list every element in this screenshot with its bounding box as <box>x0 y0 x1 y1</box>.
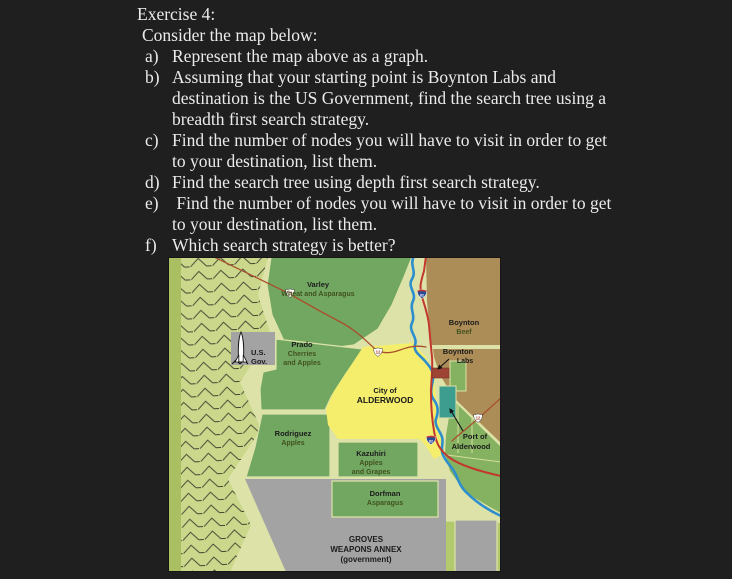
region-crop-text: and Apples <box>283 360 321 367</box>
item-letter: e) <box>145 193 172 214</box>
shield-number: 82 <box>420 293 424 297</box>
region-crop-text: Beef <box>456 329 472 336</box>
shield-number: 12 <box>376 350 381 355</box>
port-of-alderwood-site <box>439 386 456 418</box>
region-name-text: Dorfman <box>370 489 401 498</box>
item-line: Find the number of nodes you will have t… <box>172 193 611 214</box>
region-name-text: Gov. <box>251 357 267 366</box>
item-f: f) Which search strategy is better? <box>145 235 697 256</box>
item-b-cont: breadth first search strategy. <box>145 109 697 130</box>
west-edge-strip <box>168 257 181 572</box>
region-name-text: ALDERWOOD <box>357 395 414 405</box>
region-name-text: (government) <box>340 555 391 564</box>
item-b: b) Assuming that your starting point is … <box>145 67 697 88</box>
item-c-cont: to your destination, list them. <box>145 151 697 172</box>
item-d: d) Find the search tree using depth firs… <box>145 172 697 193</box>
region-name-text: City of <box>373 386 397 395</box>
item-line: to your destination, list them. <box>172 151 377 172</box>
item-e-cont: to your destination, list them. <box>145 214 697 235</box>
exercise-intro: Consider the map below: <box>137 25 697 46</box>
region-sub-text: Labs <box>457 358 473 365</box>
region-name-text: Kazuhiri <box>356 449 386 458</box>
item-line: destination is the US Government, find t… <box>172 88 606 109</box>
item-letter-spacer <box>145 214 172 235</box>
map-figure: 12 12 12 82 82 <box>168 257 501 572</box>
item-line: Represent the map above as a graph. <box>172 46 428 67</box>
item-letter: a) <box>145 46 172 67</box>
region-dorfman <box>332 481 438 517</box>
region-crop-text: Asparagus <box>367 500 403 507</box>
item-line: to your destination, list them. <box>172 214 377 235</box>
region-name-text: Port of <box>463 432 488 441</box>
exercise-title: Exercise 4: <box>137 4 697 25</box>
item-c: c) Find the number of nodes you will hav… <box>145 130 697 151</box>
region-name-text: Alderwood <box>452 442 491 451</box>
region-name-text: Boynton <box>449 318 480 327</box>
item-b-cont: destination is the US Government, find t… <box>145 88 697 109</box>
item-line: Which search strategy is better? <box>172 235 396 256</box>
item-e: e) Find the number of nodes you will hav… <box>145 193 697 214</box>
region-crop-text: Cherries <box>288 351 317 358</box>
item-line: Assuming that your starting point is Boy… <box>172 67 556 88</box>
exercise-text: Exercise 4: Consider the map below: a) R… <box>137 4 697 256</box>
item-a: a) Represent the map above as a graph. <box>145 46 697 67</box>
region-crop-text: Wheat and Asparagus <box>281 291 354 298</box>
region-southeast-gray-block <box>455 520 497 572</box>
item-letter: c) <box>145 130 172 151</box>
region-name-text: Varley <box>307 280 330 289</box>
exercise-slide: Exercise 4: Consider the map below: a) R… <box>0 0 732 579</box>
item-letter-spacer <box>145 109 172 130</box>
item-letter: b) <box>145 67 172 88</box>
region-name-text: U.S. <box>251 348 266 357</box>
region-name-text: Rodriguez <box>275 429 312 438</box>
region-crop-text: and Grapes <box>352 469 391 476</box>
us-gov-label: U.S. Gov. <box>251 348 267 366</box>
region-name-text: Prado <box>291 340 313 349</box>
item-line: Find the number of nodes you will have t… <box>172 130 607 151</box>
intro-text: Consider the map below: <box>142 25 317 46</box>
item-letter: f) <box>145 235 172 256</box>
region-name-text: Boynton <box>443 347 474 356</box>
item-letter: d) <box>145 172 172 193</box>
alderwood-map: 12 12 12 82 82 <box>168 257 501 572</box>
boynton-labs-building <box>432 368 449 378</box>
region-name-text: GROVES <box>349 535 384 544</box>
title-text: Exercise 4: <box>137 4 215 25</box>
exercise-item-list: a) Represent the map above as a graph. b… <box>137 46 697 256</box>
region-crop-text: Apples <box>281 440 304 447</box>
shield-number: 12 <box>476 416 481 421</box>
item-letter-spacer <box>145 88 172 109</box>
region-name-text: WEAPONS ANNEX <box>330 545 402 554</box>
region-crop-text: Apples <box>359 460 382 467</box>
item-line: breadth first search strategy. <box>172 109 369 130</box>
item-letter-spacer <box>145 151 172 172</box>
item-line: Find the search tree using depth first s… <box>172 172 540 193</box>
shield-number: 82 <box>429 439 433 443</box>
